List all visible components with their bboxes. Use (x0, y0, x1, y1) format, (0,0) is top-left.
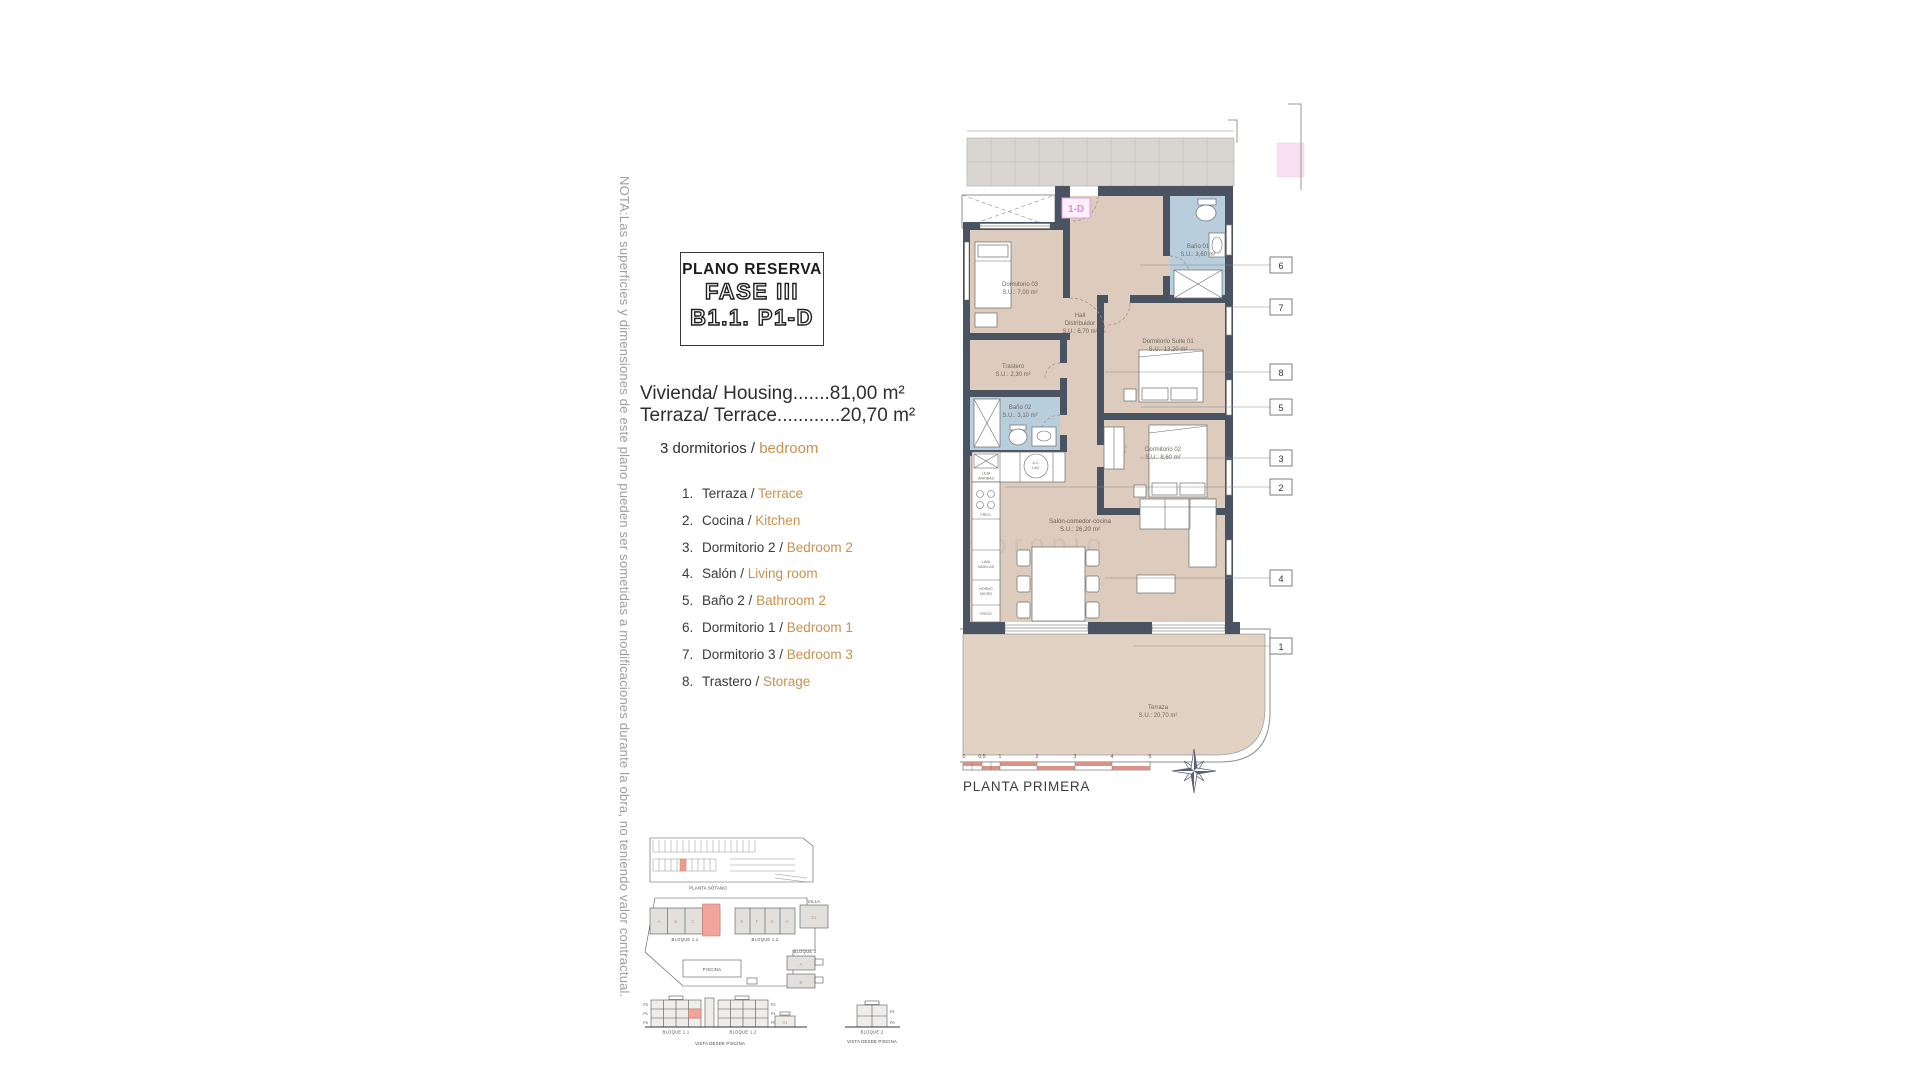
plan-caption: PLANTA PRIMERA (963, 779, 1090, 794)
svg-text:ARRIBAS: ARRIBAS (978, 477, 994, 481)
dresser (975, 313, 997, 327)
b12-caption: BLOQUE 1.2 (752, 937, 779, 942)
title-box: PLANO RESERVA FASE III B1.1. P1-D (680, 252, 824, 346)
svg-text:S.U.: 2,30 m²: S.U.: 2,30 m² (995, 372, 1030, 378)
svg-text:S.U.: 7,00 m²: S.U.: 7,00 m² (1002, 290, 1037, 296)
svg-text:P0: P0 (890, 1021, 895, 1025)
svg-text:2: 2 (1036, 754, 1039, 760)
chair (1086, 550, 1099, 566)
callout-4: 4 (1278, 574, 1283, 584)
terrace-area-line: Terraza/ Terrace............20,70 m² (640, 405, 915, 427)
b12-elevation-caption: BLOQUE 1.2 (730, 1030, 757, 1035)
room-label: Dormitorio 02 (1145, 447, 1182, 453)
room-label: Dormitorio 03 (1002, 282, 1039, 288)
svg-text:S.U.: 13,20 m²: S.U.: 13,20 m² (1149, 347, 1188, 353)
margin-note: NOTA:Las superficies y dimensiones de es… (617, 176, 632, 918)
svg-text:F: F (756, 919, 759, 924)
svg-text:01: 01 (812, 915, 817, 920)
floor-plan-sheet: NOTA:Las superficies y dimensiones de es… (0, 0, 1920, 1080)
svg-text:MICRO: MICRO (980, 592, 992, 596)
svg-text:G: G (770, 919, 774, 924)
callout-7: 7 (1278, 303, 1283, 313)
pillow (1152, 483, 1177, 495)
callout-6: 6 (1278, 261, 1283, 271)
pillow (1142, 388, 1168, 400)
svg-text:A.C.: A.C. (1033, 461, 1040, 465)
svg-text:S.U.: 6,70 m²: S.U.: 6,70 m² (1062, 329, 1097, 335)
basement-caption: PLANTA SÓTANO (689, 886, 727, 891)
svg-text:FRIGO: FRIGO (980, 612, 992, 616)
sink (1032, 427, 1056, 446)
svg-text:Distribuidor: Distribuidor (1065, 321, 1095, 327)
room-label: Terraza (1148, 705, 1169, 711)
sofa-chaise (1189, 499, 1216, 567)
svg-text:P2: P2 (771, 1003, 776, 1007)
svg-text:A: A (658, 919, 661, 924)
chair (1086, 602, 1099, 618)
nightstand (1124, 389, 1136, 401)
callout-3: 3 (1278, 454, 1283, 464)
svg-text:S.U.: 26,20 m²: S.U.: 26,20 m² (1060, 526, 1100, 533)
svg-text:S.U.: 20,70 m²: S.U.: 20,70 m² (1139, 713, 1178, 719)
b11-caption: BLOQUE 1.1 (672, 937, 699, 942)
phase-label: FASE III (681, 279, 823, 305)
svg-text:1-D: 1-D (1068, 204, 1084, 215)
svg-text:HORNO: HORNO (979, 587, 993, 591)
legend-item: 1.Terraza / Terrace (682, 486, 853, 501)
pillow (1171, 388, 1197, 400)
svg-text:3: 3 (1074, 754, 1077, 760)
pillow (1180, 483, 1205, 495)
chair (1017, 550, 1030, 566)
hob-label: FREG. (981, 513, 992, 517)
svg-text:H: H (785, 919, 788, 924)
svg-text:S.U.: 3,60 m²: S.U.: 3,60 m² (1180, 252, 1215, 258)
svg-text:B: B (800, 980, 803, 985)
svg-text:A: A (800, 962, 803, 967)
legend-item: 5.Baño 2 / Bathroom 2 (682, 593, 853, 608)
basement-plan: PLANTA SÓTANO (650, 838, 813, 891)
walkway-hatch (967, 131, 1234, 186)
toilet-tank (1198, 199, 1216, 205)
chair (1017, 602, 1030, 618)
chair (1017, 576, 1030, 592)
svg-text:C: C (691, 919, 694, 924)
piscina-label: PISCINA (703, 967, 721, 972)
villa-caption: VILLA (808, 899, 821, 904)
svg-text:E: E (741, 919, 744, 924)
bedrooms-es: 3 dormitorios / (660, 440, 755, 457)
callout-5: 5 (1278, 403, 1283, 413)
bedrooms-line: 3 dormitorios / bedroom (660, 440, 818, 457)
terrace (960, 629, 1270, 762)
svg-text:P1: P1 (890, 1010, 895, 1014)
toilet (1009, 429, 1027, 445)
b2-caption: BLOQUE 2 (794, 949, 817, 954)
svg-text:P1: P1 (643, 1012, 648, 1016)
legend-item: 3.Dormitorio 2 / Bedroom 2 (682, 540, 853, 555)
room-label: Baño 02 (1009, 405, 1032, 411)
site-plan: A B C BLOQUE 1.1 E F G H BLOQUE 1.2 VILL… (645, 898, 828, 988)
toilet (1196, 205, 1216, 221)
b2-elevation-caption: BLOQUE 2 (861, 1030, 884, 1035)
b11-elevation-caption: BLOQUE 1.1 (663, 1030, 690, 1035)
room-label: Trastero (1002, 364, 1025, 370)
svg-text:P2: P2 (643, 1003, 648, 1007)
dining-table (1032, 547, 1085, 621)
svg-text:S.U.: 3,10 m²: S.U.: 3,10 m² (1002, 413, 1037, 419)
svg-text:0.5: 0.5 (978, 754, 985, 760)
unit-badge: 1-D (1062, 198, 1090, 218)
bedrooms-en: bedroom (759, 440, 818, 457)
room-label: Baño 01 (1187, 244, 1210, 250)
room-legend: 1.Terraza / Terrace 2.Cocina / Kitchen 3… (682, 486, 853, 700)
compass-icon (1172, 749, 1216, 793)
floor-plan: propio (958, 95, 1320, 805)
callout-2: 2 (1278, 483, 1283, 493)
view-caption-2: VISTA DESDE PISCINA (847, 1039, 897, 1044)
neighbour-unit-highlight (1277, 143, 1304, 177)
svg-text:0: 0 (963, 754, 966, 760)
plan-type-label: PLANO RESERVA (681, 261, 823, 279)
svg-text:LAV.: LAV. (1032, 466, 1039, 470)
housing-area-line: Vivienda/ Housing.......81,00 m² (640, 383, 915, 405)
svg-text:P0: P0 (643, 1021, 648, 1025)
svg-text:1: 1 (999, 754, 1002, 760)
unit-code-label: B1.1. P1-D (681, 305, 823, 331)
callout-1: 1 (1278, 642, 1283, 652)
svg-text:VAJILLAS: VAJILLAS (978, 565, 995, 569)
site-diagrams: PLANTA SÓTANO A B C BLOQUE 1.1 E F G H B… (635, 832, 935, 1072)
area-summary: Vivienda/ Housing.......81,00 m² Terraza… (640, 383, 915, 427)
scale-bar: 0 0.5 1 2 3 4 5 (963, 754, 1152, 770)
legend-item: 4.Salón / Living room (682, 566, 853, 581)
legend-item: 8.Trastero / Storage (682, 674, 853, 689)
svg-text:B: B (675, 919, 678, 924)
legend-item: 6.Dormitorio 1 / Bedroom 1 (682, 620, 853, 635)
svg-text:P1: P1 (771, 1012, 776, 1016)
legend-item: 7.Dormitorio 3 / Bedroom 3 (682, 647, 853, 662)
room-label: Hall (1075, 313, 1085, 319)
elevations: P2 P1 P0 P2 P1 P0 01 BLOQUE 1.1 BLOQUE 1… (643, 996, 900, 1046)
kitchen-run (972, 482, 1000, 622)
room-label: Salón-comedor-cocina (1049, 518, 1111, 525)
room-label: Dormitorio Suite 01 (1142, 339, 1194, 345)
svg-text:LEJA: LEJA (982, 472, 991, 476)
chair (1086, 576, 1099, 592)
svg-text:5: 5 (1149, 754, 1152, 760)
svg-text:01: 01 (783, 1020, 788, 1025)
callout-8: 8 (1278, 368, 1283, 378)
view-caption: VISTA DESDE PISCINA (695, 1041, 745, 1046)
pillow (978, 245, 1008, 257)
legend-item: 2.Cocina / Kitchen (682, 513, 853, 528)
svg-text:4: 4 (1111, 754, 1114, 760)
svg-text:LAVA: LAVA (982, 560, 991, 564)
